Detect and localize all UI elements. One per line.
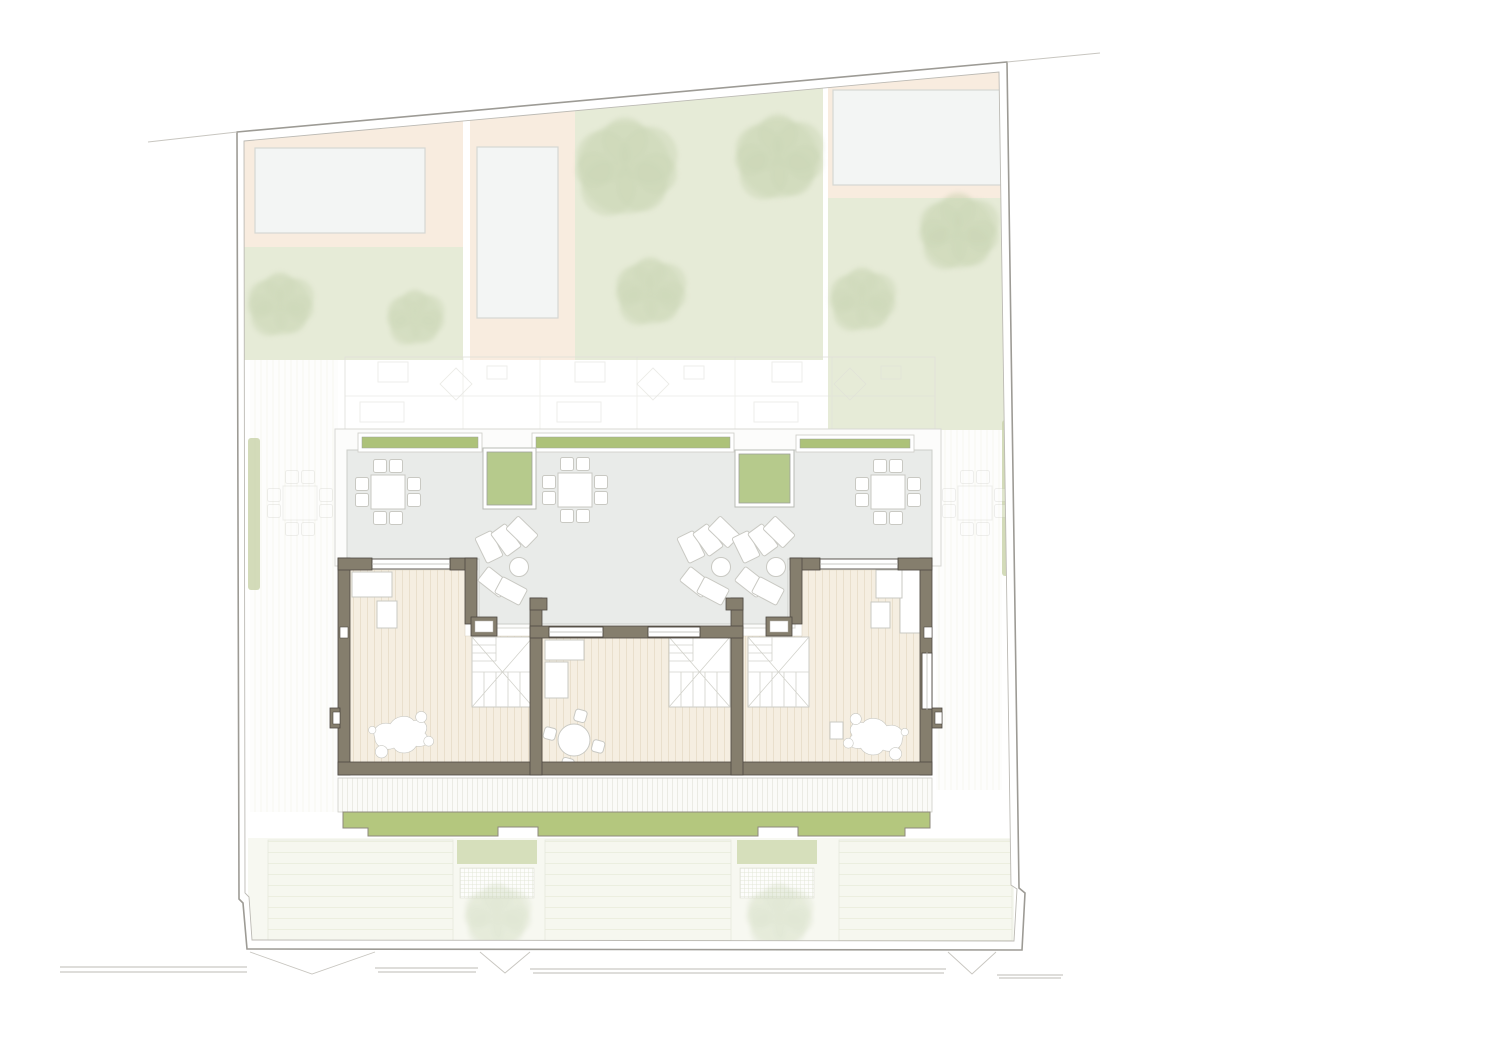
furniture-piece [545,640,584,660]
boundary-stub [1007,53,1100,62]
planter-strip [532,433,734,452]
rear-lawn-patch [457,840,537,864]
sill-window [471,617,497,636]
garden-path-1 [463,58,470,360]
furniture-piece [377,601,397,628]
window [820,559,898,569]
rear-paving [268,840,1012,947]
wall-notch [333,712,340,724]
staircase [472,637,533,707]
furniture-piece [352,572,392,597]
wall-notch [935,712,942,724]
site-plan-svg [0,0,1500,1060]
wall-notch [340,627,348,638]
rear-paving-block [545,840,731,947]
pool [255,148,425,233]
furniture-piece [871,602,890,628]
window [549,627,603,637]
sill-window [766,617,792,636]
street-edge-lines [60,967,1063,978]
planter-strip [796,435,914,452]
furniture-piece [545,662,568,698]
staircase [669,637,730,707]
gate-mark [480,952,530,973]
garden-path-2 [823,58,828,360]
window [372,559,450,569]
hedge [248,438,260,590]
entrance-gates [250,952,996,974]
planter-strip [358,433,482,452]
wall-notch [924,627,932,638]
planter-box [483,448,536,509]
furniture-piece [830,722,843,739]
pool [477,147,558,318]
rear-deck [338,778,932,812]
planter-box [735,450,794,507]
rear-lawn-patch [737,840,817,864]
floor-plan-canvas [0,0,1500,1060]
furniture-piece [876,570,902,598]
parcel-interior [0,0,1500,1060]
window [648,627,700,637]
furniture-piece [900,570,920,633]
rear-paving-block [839,840,1012,946]
staircase [748,637,809,707]
pool [833,90,1007,185]
window [922,652,932,710]
planter-strips [358,433,914,452]
gate-mark [250,952,375,974]
side-passage [250,360,338,812]
rear-planter-strip [343,812,930,836]
gate-mark [948,952,996,974]
boundary-stub [148,132,237,142]
rear-paving-block [268,840,453,947]
